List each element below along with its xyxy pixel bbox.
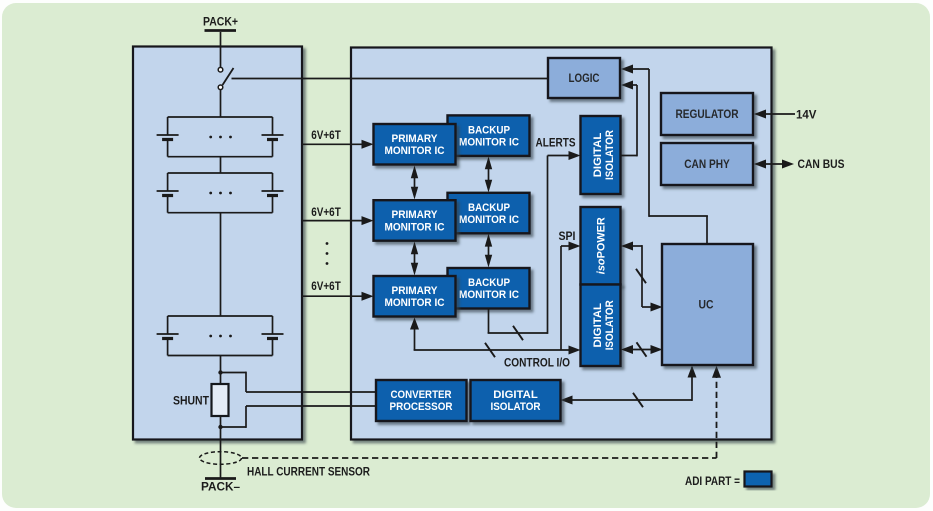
svg-text:14V: 14V — [796, 109, 817, 121]
svg-text:6V+6T: 6V+6T — [311, 281, 341, 293]
svg-text:MONITOR IC: MONITOR IC — [385, 297, 445, 309]
svg-text:CAN PHY: CAN PHY — [684, 159, 730, 171]
svg-text:HALL CURRENT SENSOR: HALL CURRENT SENSOR — [247, 467, 371, 479]
svg-text:PRIMARY: PRIMARY — [392, 209, 439, 221]
svg-text:ISOLATOR: ISOLATOR — [604, 130, 616, 180]
svg-text:MONITOR IC: MONITOR IC — [459, 137, 519, 149]
svg-text:6V+6T: 6V+6T — [311, 207, 341, 219]
svg-text:MONITOR IC: MONITOR IC — [385, 145, 445, 157]
svg-text:BACKUP: BACKUP — [468, 277, 510, 289]
svg-text:ADI PART =: ADI PART = — [685, 476, 740, 488]
svg-text:BACKUP: BACKUP — [468, 202, 510, 214]
svg-text:ISOLATOR: ISOLATOR — [604, 300, 616, 350]
svg-text:isoPOWER: isoPOWER — [596, 217, 608, 274]
svg-text:MONITOR IC: MONITOR IC — [385, 221, 445, 233]
svg-text:ALERTS: ALERTS — [536, 137, 576, 149]
svg-text:DIGITAL: DIGITAL — [592, 303, 604, 348]
svg-text:REGULATOR: REGULATOR — [676, 109, 740, 121]
svg-text:MONITOR IC: MONITOR IC — [459, 214, 519, 226]
svg-text:PROCESSOR: PROCESSOR — [390, 401, 453, 413]
svg-text:DIGITAL: DIGITAL — [592, 132, 604, 177]
svg-text:CONTROL I/O: CONTROL I/O — [504, 358, 570, 370]
svg-text:DIGITAL: DIGITAL — [493, 389, 538, 401]
svg-text:MONITOR IC: MONITOR IC — [459, 289, 519, 301]
svg-text:ISOLATOR: ISOLATOR — [491, 401, 541, 413]
svg-text:CAN BUS: CAN BUS — [798, 159, 845, 171]
svg-text:PRIMARY: PRIMARY — [392, 133, 439, 145]
svg-text:CONVERTER: CONVERTER — [391, 389, 452, 401]
svg-text:6V+6T: 6V+6T — [311, 130, 341, 142]
svg-text:PACK+: PACK+ — [203, 17, 238, 29]
svg-text:SPI: SPI — [559, 231, 576, 243]
svg-text:UC: UC — [699, 298, 714, 312]
svg-text:SHUNT: SHUNT — [173, 395, 209, 407]
svg-text:PRIMARY: PRIMARY — [392, 285, 439, 297]
svg-text:PACK–: PACK– — [201, 482, 241, 494]
svg-text:LOGIC: LOGIC — [569, 73, 600, 85]
svg-text:BACKUP: BACKUP — [468, 124, 510, 136]
